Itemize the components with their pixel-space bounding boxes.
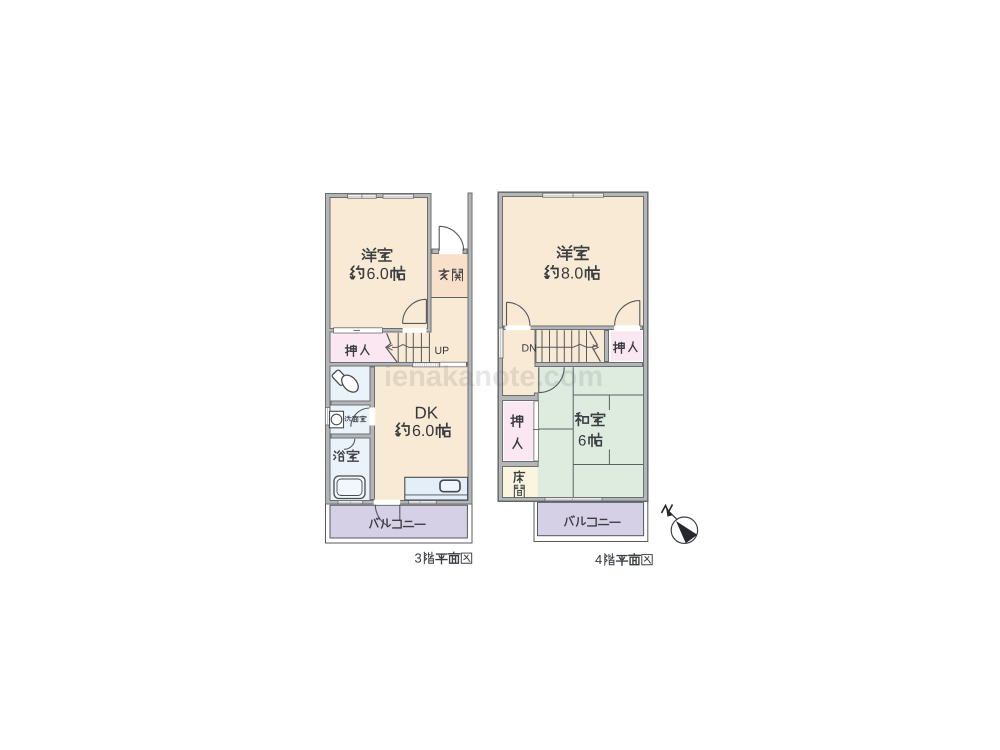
- svg-text:ienakanote.com: ienakanote.com: [384, 361, 603, 393]
- svg-text:UP: UP: [435, 345, 450, 357]
- svg-text:3: 3: [415, 551, 422, 566]
- svg-text:6.0: 6.0: [412, 423, 434, 440]
- svg-text:8.0: 8.0: [561, 266, 583, 283]
- svg-text:6: 6: [578, 433, 586, 450]
- svg-text:DN: DN: [522, 343, 537, 355]
- svg-text:DK: DK: [415, 404, 439, 423]
- svg-text:6.0: 6.0: [367, 266, 389, 283]
- svg-text:4: 4: [595, 552, 602, 567]
